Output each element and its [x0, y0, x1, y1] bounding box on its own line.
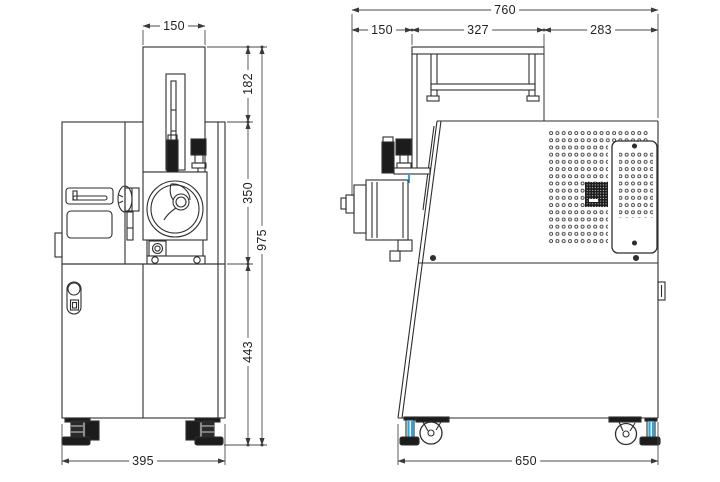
foot-pad-front-right — [195, 437, 223, 445]
side-top-table — [412, 47, 544, 168]
dim-front-mid-height: 350 — [241, 179, 255, 207]
foot-pad-front-left — [62, 437, 90, 445]
dim-front-total-height: 975 — [255, 226, 269, 254]
foot-pad-side-right — [640, 437, 660, 445]
dim-side-total-depth: 760 — [491, 3, 519, 17]
feed-lever-grip — [167, 140, 178, 172]
foot-pad-side-left — [400, 437, 419, 445]
side-knob — [396, 139, 411, 155]
side-feet — [400, 417, 660, 445]
side-vent-area — [547, 129, 657, 253]
front-head — [143, 172, 207, 264]
dim-front-lower-height: 443 — [241, 338, 255, 366]
dim-front-base-width: 395 — [129, 454, 157, 468]
door-lock — [67, 282, 81, 314]
front-view — [55, 47, 225, 445]
front-cabinet — [62, 264, 225, 418]
side-lever-grip — [382, 142, 394, 173]
dimension-drawing-canvas: 150 182 350 443 975 395 760 150 327 283 … — [0, 0, 720, 482]
front-feet — [62, 418, 223, 445]
rating-plate — [585, 182, 608, 207]
dim-front-top-width: 150 — [160, 19, 188, 33]
dim-side-base-depth: 650 — [512, 454, 540, 468]
crank-hub — [173, 194, 189, 210]
dim-front-upper-height: 182 — [241, 70, 255, 98]
line-art — [0, 0, 720, 482]
side-view — [341, 47, 665, 445]
front-carriage — [66, 186, 139, 240]
dim-side-rear-depth: 283 — [587, 23, 615, 37]
dim-side-mid-depth: 327 — [464, 23, 492, 37]
dim-side-front-depth: 150 — [368, 23, 396, 37]
